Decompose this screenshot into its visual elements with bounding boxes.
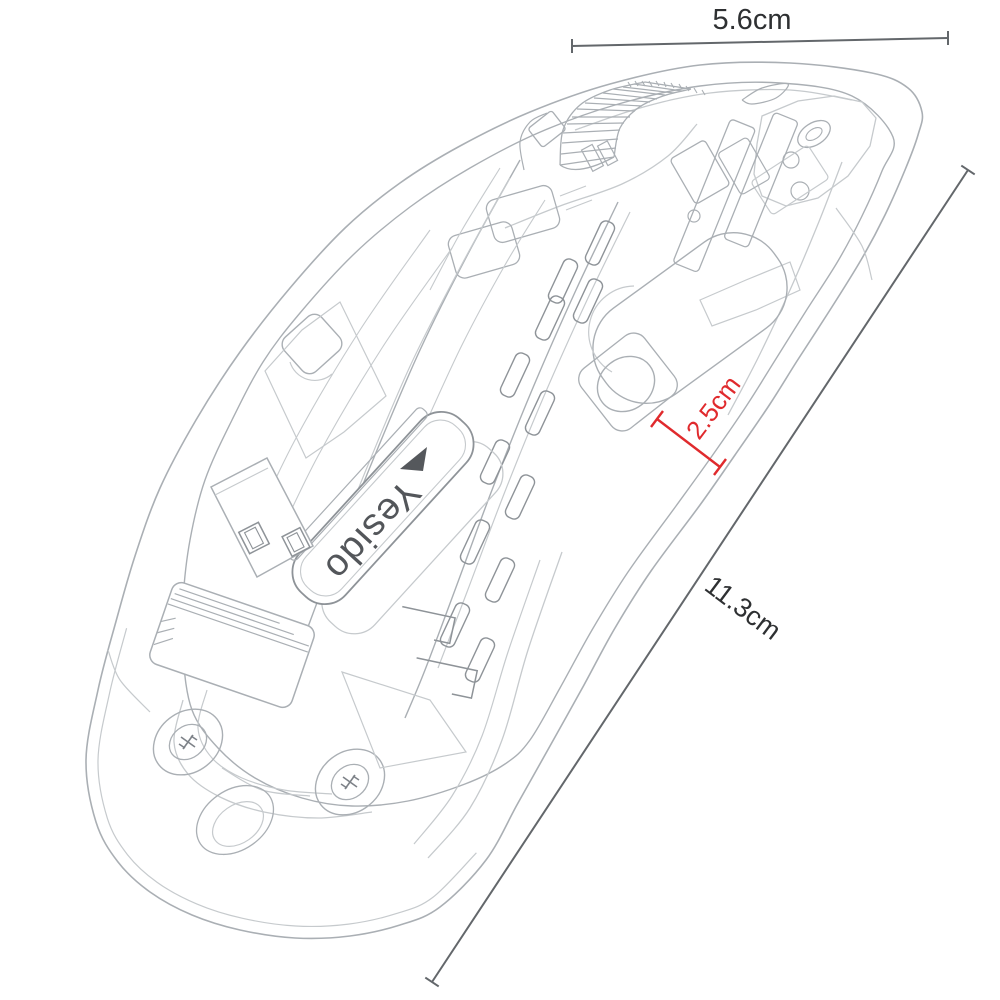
svg-text:2.5cm: 2.5cm: [680, 370, 747, 445]
svg-text:11.3cm: 11.3cm: [699, 570, 786, 646]
svg-text:5.6cm: 5.6cm: [713, 4, 792, 36]
